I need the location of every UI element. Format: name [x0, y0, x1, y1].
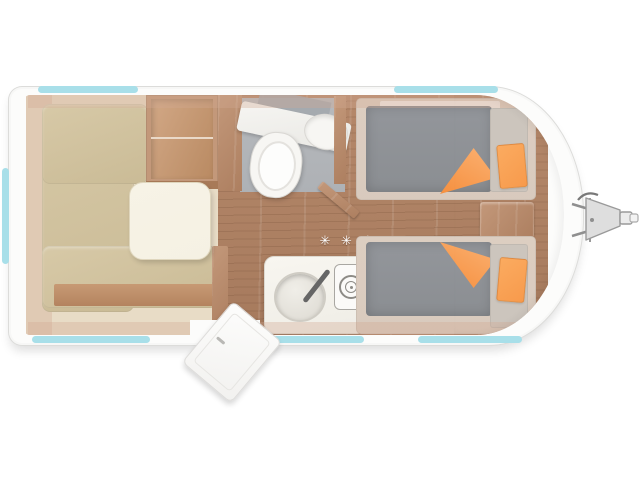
window-side-top-right	[394, 86, 498, 93]
dinette-table	[129, 182, 211, 260]
hitch-bolt	[590, 218, 594, 222]
toilet-seat	[255, 139, 299, 193]
window-side-bottom-left	[32, 336, 150, 343]
wardrobe-shelf-line	[151, 137, 213, 139]
wardrobe-interior	[151, 99, 213, 179]
window-rear	[2, 168, 9, 264]
dinette-bench-front-panel	[54, 284, 218, 306]
wardrobe	[146, 95, 218, 189]
bathroom-cabinet	[218, 95, 242, 191]
window-side-top-left	[38, 86, 138, 93]
window-side-bottom-center	[268, 336, 364, 343]
floorplan-canvas: ✳ ✳ ✳	[0, 0, 640, 480]
bathroom-wall	[334, 96, 346, 184]
hitch-coupling-tip	[630, 214, 638, 222]
dinette-bench-top	[42, 104, 148, 184]
caravan-interior: ✳ ✳ ✳	[24, 95, 564, 335]
tow-hitch	[566, 188, 640, 252]
window-side-bottom-right	[418, 336, 522, 343]
